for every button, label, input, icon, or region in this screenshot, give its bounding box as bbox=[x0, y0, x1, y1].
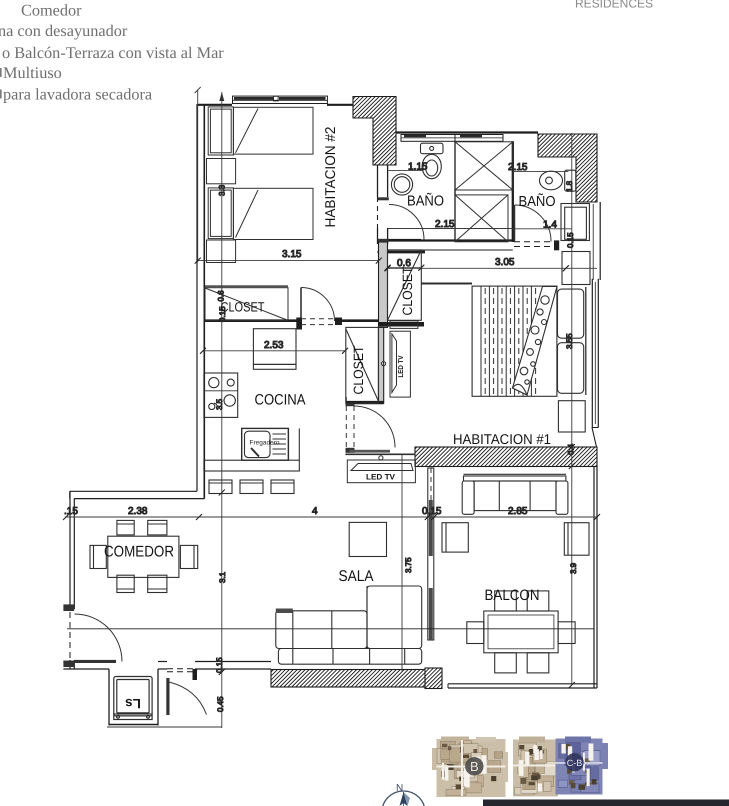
svg-text:0.15: 0.15 bbox=[422, 506, 442, 517]
svg-text:.15: .15 bbox=[64, 506, 78, 517]
svg-text:0.15: 0.15 bbox=[566, 232, 575, 248]
svg-text:3.1: 3.1 bbox=[218, 571, 227, 583]
svg-text:2.15: 2.15 bbox=[508, 162, 528, 173]
svg-text:3.9: 3.9 bbox=[569, 562, 578, 574]
svg-text:3.05: 3.05 bbox=[495, 257, 515, 268]
svg-text:1.4: 1.4 bbox=[543, 220, 557, 231]
svg-text:BAÑO: BAÑO bbox=[407, 193, 444, 210]
svg-text:CLOSET: CLOSET bbox=[351, 346, 366, 395]
svg-text:2.38: 2.38 bbox=[128, 506, 148, 517]
svg-text:0.15: 0.15 bbox=[215, 657, 224, 673]
svg-text:3.3: 3.3 bbox=[218, 184, 227, 196]
svg-text:Multiuso: Multiuso bbox=[3, 63, 62, 82]
svg-text:2.85: 2.85 bbox=[508, 506, 528, 517]
svg-text:BALCON: BALCON bbox=[485, 587, 540, 604]
svg-text:1.15: 1.15 bbox=[408, 162, 428, 173]
svg-text:LED TV: LED TV bbox=[366, 472, 396, 481]
svg-text:N: N bbox=[396, 783, 403, 794]
svg-text:3.15: 3.15 bbox=[282, 249, 302, 260]
svg-text:B: B bbox=[470, 759, 479, 774]
svg-text:LED TV: LED TV bbox=[398, 355, 405, 377]
svg-text:RESIDENCES: RESIDENCES bbox=[575, 0, 653, 11]
svg-text:3.75: 3.75 bbox=[404, 557, 413, 573]
svg-text:CLOSET: CLOSET bbox=[400, 267, 415, 316]
svg-text:1.8: 1.8 bbox=[565, 180, 574, 192]
svg-text:0.4: 0.4 bbox=[567, 443, 576, 455]
svg-text:o Balcón-Terraza con vista al: o Balcón-Terraza con vista al Mar bbox=[2, 43, 224, 62]
svg-text:4: 4 bbox=[312, 506, 318, 517]
svg-text:0.45: 0.45 bbox=[216, 696, 225, 712]
svg-text:3.55: 3.55 bbox=[565, 333, 574, 349]
svg-text:3.5: 3.5 bbox=[215, 398, 224, 410]
svg-text:HABITACION #1: HABITACION #1 bbox=[453, 432, 551, 448]
svg-text:Ls: Ls bbox=[125, 696, 141, 711]
svg-text:COCINA: COCINA bbox=[255, 392, 306, 409]
svg-text:HABITACION #2: HABITACION #2 bbox=[323, 126, 339, 227]
svg-text:C-B: C-B bbox=[567, 758, 583, 768]
svg-text:Fregadero: Fregadero bbox=[250, 440, 280, 447]
svg-text:na con desayunador: na con desayunador bbox=[0, 21, 128, 40]
svg-text:BAÑO: BAÑO bbox=[519, 193, 556, 210]
svg-text:COMEDOR: COMEDOR bbox=[104, 543, 174, 560]
svg-text:SALA: SALA bbox=[339, 568, 375, 585]
svg-text:Comedor: Comedor bbox=[21, 1, 82, 20]
svg-text:2.15: 2.15 bbox=[435, 219, 455, 230]
svg-text:CLOSET: CLOSET bbox=[221, 300, 265, 315]
svg-text:para lavadora secadora: para lavadora secadora bbox=[3, 85, 152, 104]
svg-text:2.53: 2.53 bbox=[264, 340, 284, 351]
